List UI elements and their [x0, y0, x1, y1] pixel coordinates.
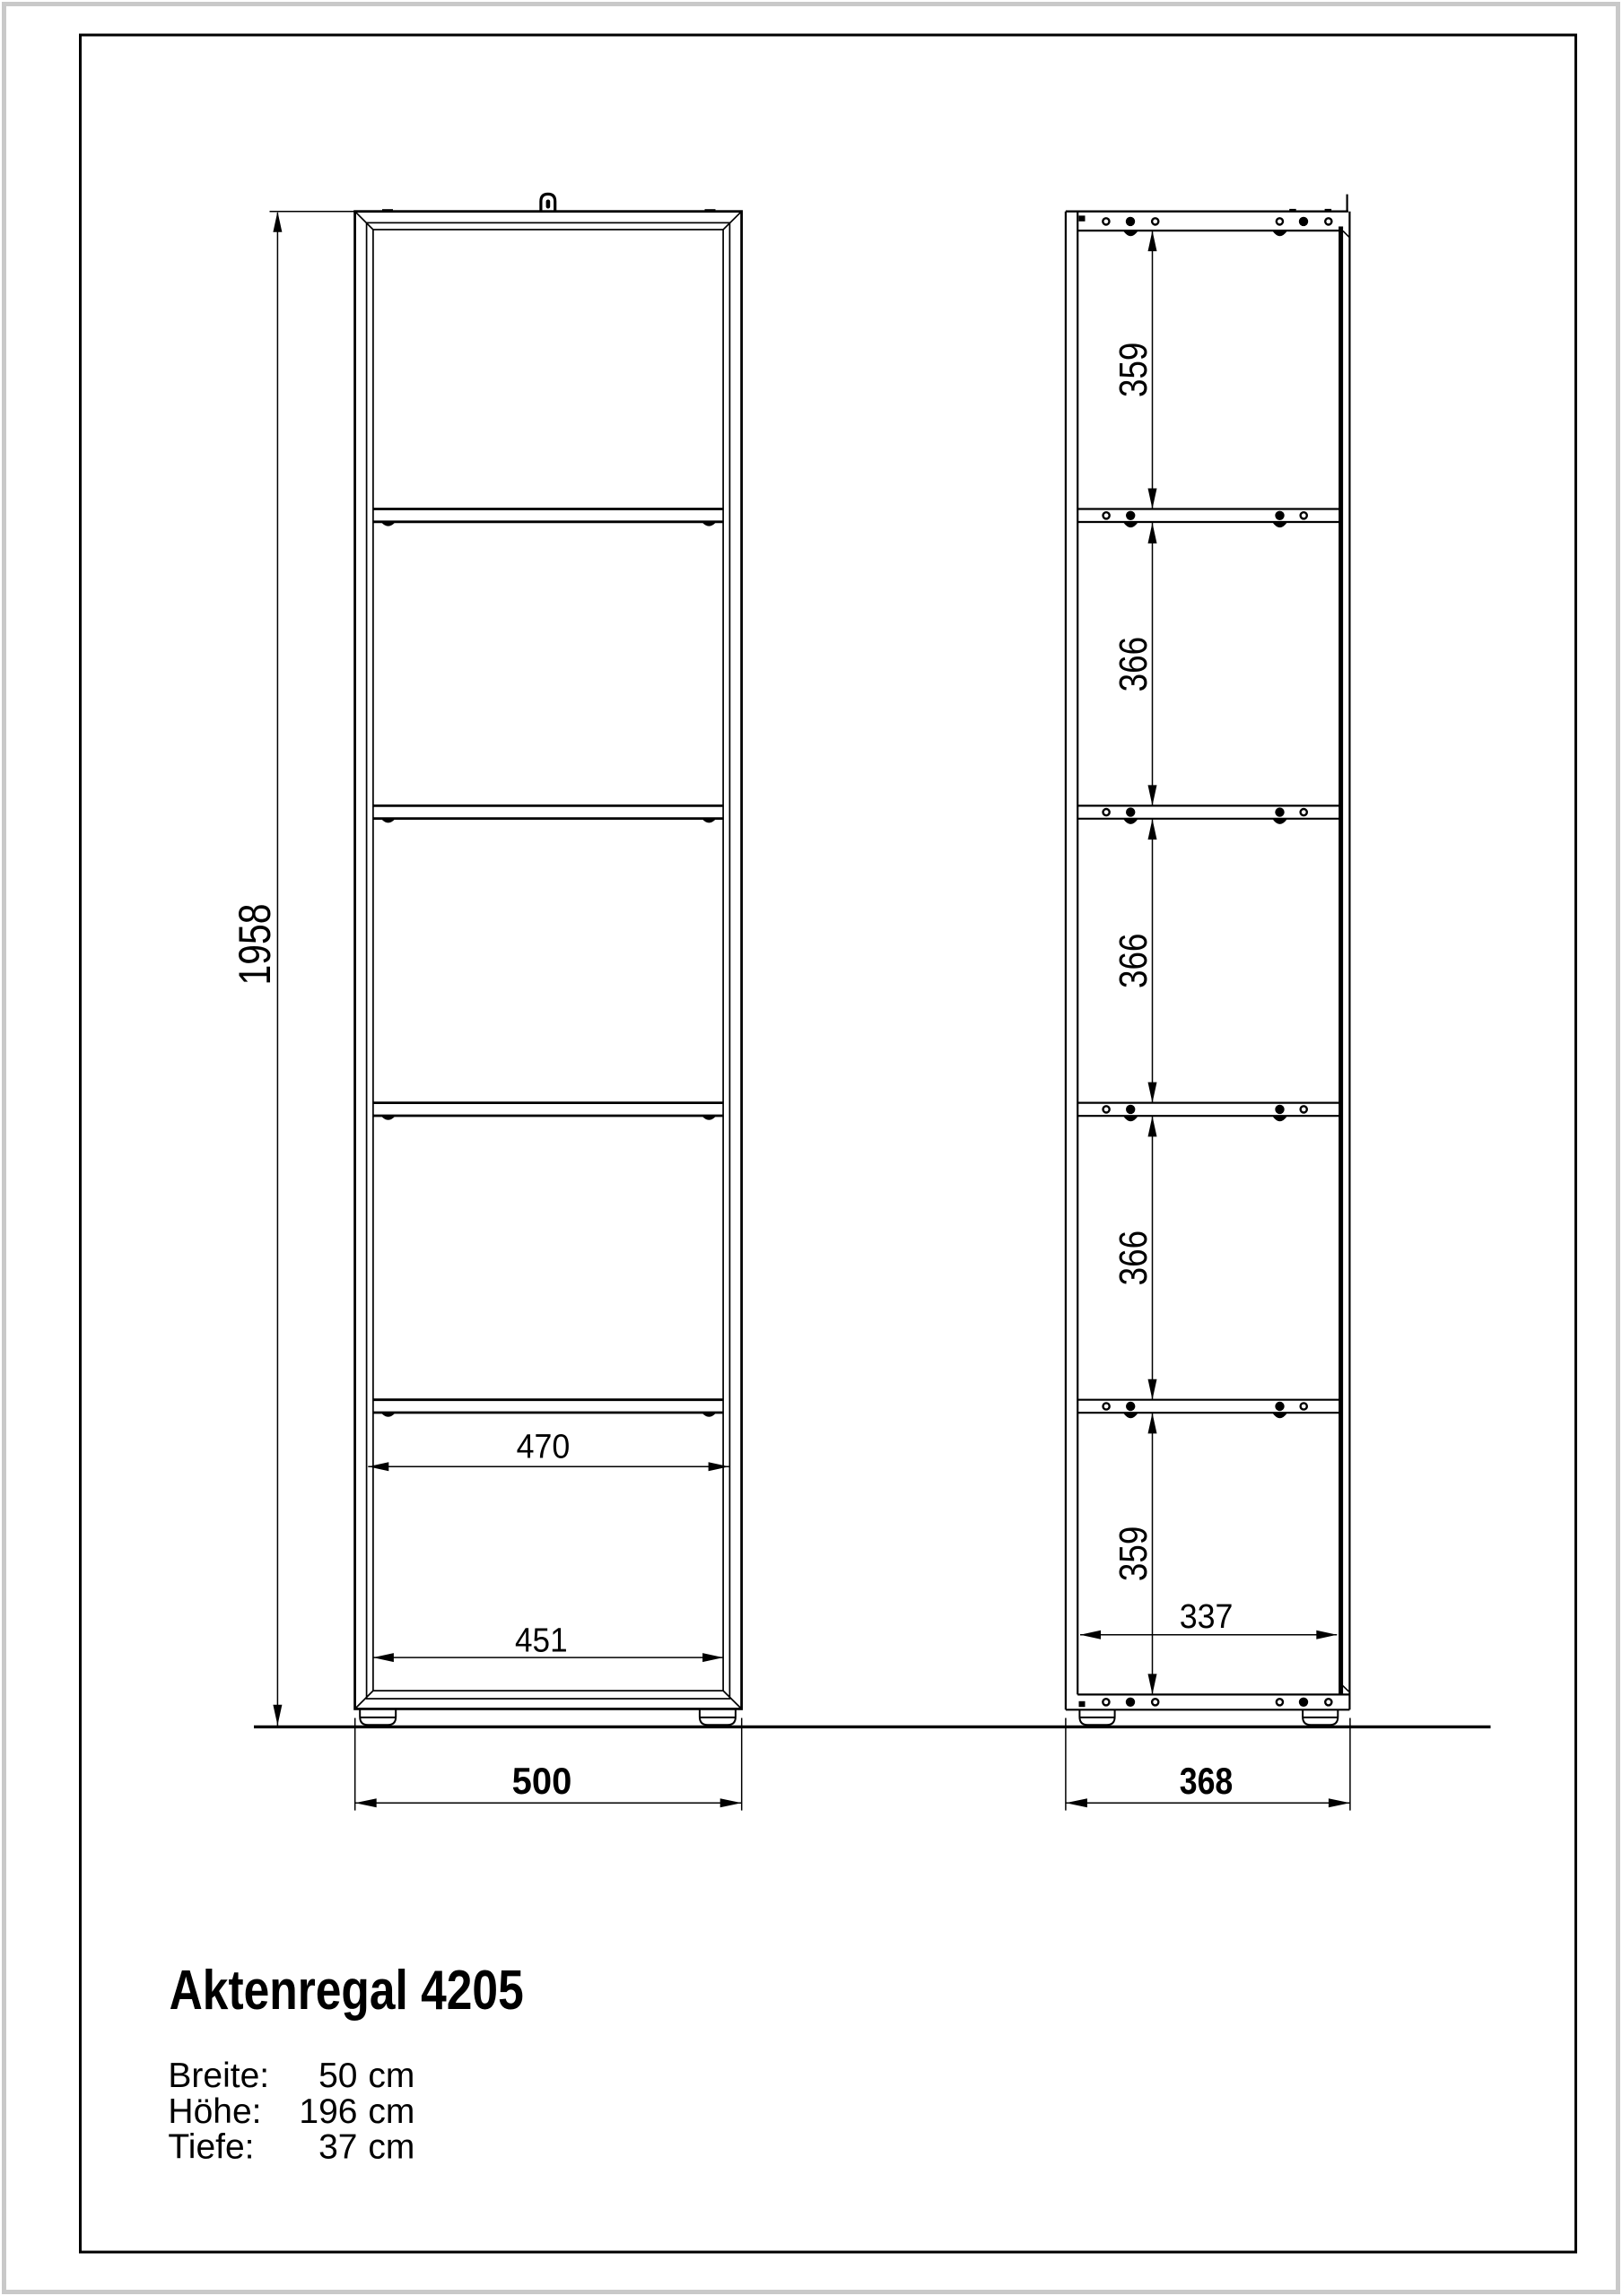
svg-text:366: 366	[1111, 1231, 1155, 1285]
svg-text:cm: cm	[368, 2057, 414, 2095]
svg-text:37: 37	[318, 2127, 357, 2166]
svg-text:359: 359	[1111, 343, 1155, 397]
svg-text:1958: 1958	[230, 904, 280, 986]
svg-text:Breite:: Breite:	[168, 2057, 269, 2095]
svg-text:Höhe:: Höhe:	[168, 2092, 261, 2131]
svg-text:Aktenregal 4205: Aktenregal 4205	[170, 1961, 524, 2022]
svg-text:368: 368	[1180, 1761, 1234, 1803]
svg-text:Tiefe:: Tiefe:	[168, 2127, 254, 2166]
svg-text:366: 366	[1111, 637, 1155, 691]
svg-text:50: 50	[318, 2057, 357, 2095]
svg-text:cm: cm	[368, 2127, 414, 2166]
svg-text:337: 337	[1180, 1596, 1234, 1635]
svg-text:470: 470	[517, 1426, 571, 1465]
svg-text:cm: cm	[368, 2092, 414, 2131]
svg-text:366: 366	[1111, 934, 1155, 988]
svg-text:451: 451	[515, 1621, 568, 1659]
svg-text:500: 500	[512, 1760, 572, 1802]
svg-text:359: 359	[1111, 1526, 1155, 1581]
svg-text:196: 196	[299, 2092, 357, 2131]
